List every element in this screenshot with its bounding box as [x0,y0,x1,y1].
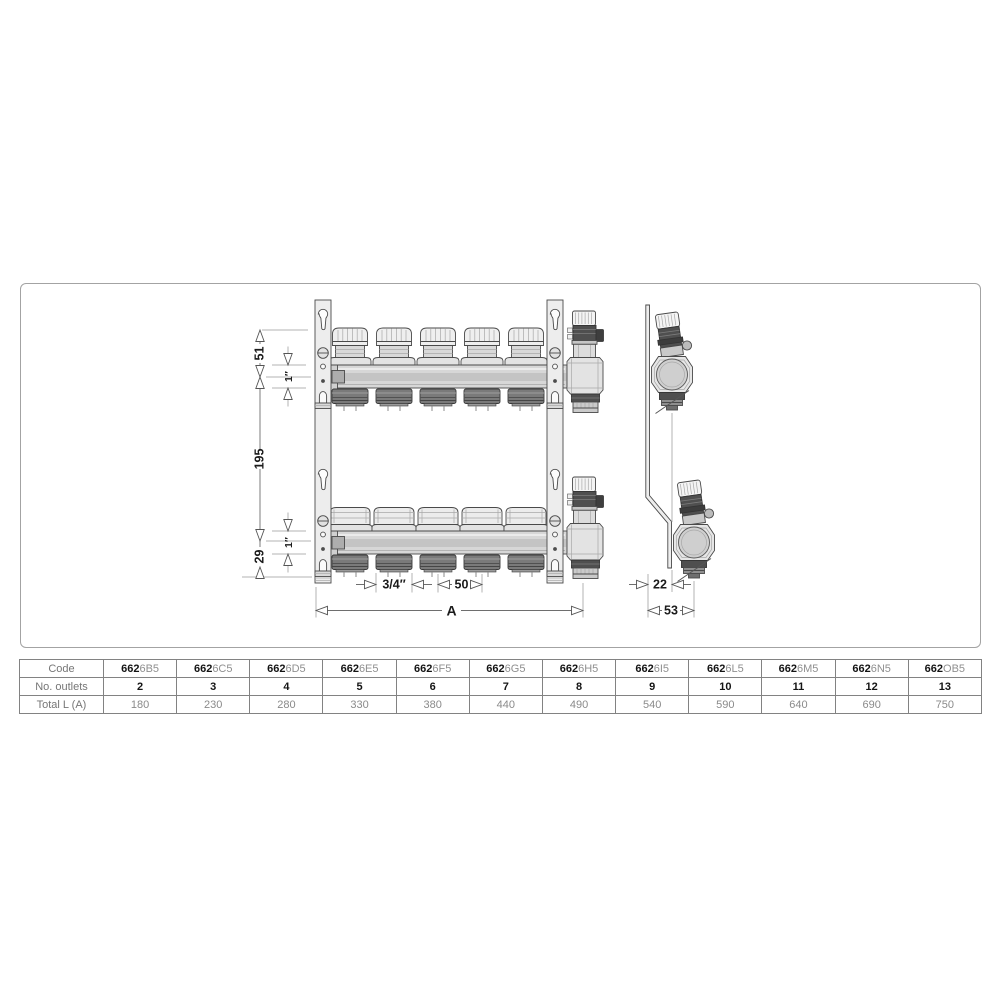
code-suffix: OB5 [943,663,965,675]
code-prefix: 662 [486,663,504,675]
outlets-cell: 2 [104,678,177,696]
spec-row-outlets: No. outlets 2 3 4 5 6 7 8 9 10 11 12 13 [20,678,982,696]
code-prefix: 662 [560,663,578,675]
code-suffix: 6F5 [432,663,451,675]
diagram-panel: 51 1″ 195 29 1″ 3/4″ 50 A 22 53 [20,283,981,648]
outlets-cell: 9 [616,678,689,696]
code-cell: 6626D5 [250,660,323,678]
dim-label-51: 51 [253,347,267,361]
total-length-cell: 180 [104,696,177,714]
code-cell: 6626E5 [323,660,396,678]
outlets-cell: 12 [835,678,908,696]
dim-label-total-length-A: A [446,603,456,619]
dim-label-outlet-size: 3/4″ [382,578,405,592]
outlets-cell: 13 [908,678,981,696]
dim-label-depth-offset: 22 [653,578,667,592]
outlets-cell: 4 [250,678,323,696]
code-prefix: 662 [707,663,725,675]
total-length-cell: 280 [250,696,323,714]
code-cell: 6626C5 [177,660,250,678]
dim-label-195: 195 [253,449,267,470]
outlets-cell: 11 [762,678,835,696]
total-length-cell: 230 [177,696,250,714]
total-length-cell: 590 [689,696,762,714]
manifold-technical-drawing: 51 1″ 195 29 1″ 3/4″ 50 A 22 53 [21,284,978,645]
code-suffix: 6D5 [285,663,305,675]
code-suffix: 6I5 [654,663,669,675]
outlets-cell: 3 [177,678,250,696]
code-prefix: 662 [341,663,359,675]
code-suffix: 6G5 [505,663,526,675]
code-suffix: 6C5 [212,663,232,675]
outlets-cell: 7 [469,678,542,696]
total-length-cell: 750 [908,696,981,714]
code-cell: 6626N5 [835,660,908,678]
row-label-outlets: No. outlets [20,678,104,696]
code-suffix: 6M5 [797,663,818,675]
code-suffix: 6L5 [725,663,743,675]
outlets-cell: 5 [323,678,396,696]
dim-label-depth-total: 53 [664,604,678,618]
dim-label-1in-top: 1″ [283,371,295,382]
side-view [646,305,715,582]
spec-row-total-length: Total L (A) 180 230 280 330 380 440 490 … [20,696,982,714]
total-length-cell: 690 [835,696,908,714]
total-length-cell: 640 [762,696,835,714]
dim-label-1in-bottom: 1″ [283,537,295,548]
code-cell: 6626M5 [762,660,835,678]
total-length-cell: 380 [396,696,469,714]
code-cell: 6626H5 [542,660,615,678]
code-prefix: 662 [194,663,212,675]
spec-table: Code 6626B5 6626C5 6626D5 6626E5 6626F5 … [19,659,982,714]
code-cell: 6626F5 [396,660,469,678]
code-suffix: 6E5 [359,663,379,675]
code-prefix: 662 [779,663,797,675]
code-cell: 6626B5 [104,660,177,678]
code-cell: 6626G5 [469,660,542,678]
outlets-cell: 8 [542,678,615,696]
outlets-cell: 6 [396,678,469,696]
code-suffix: 6N5 [871,663,891,675]
code-suffix: 6H5 [578,663,598,675]
spec-row-code: Code 6626B5 6626C5 6626D5 6626E5 6626F5 … [20,660,982,678]
outlets-cell: 10 [689,678,762,696]
dim-label-outlet-spacing: 50 [455,578,469,592]
code-cell: 662OB5 [908,660,981,678]
total-length-cell: 490 [542,696,615,714]
total-length-cell: 440 [469,696,542,714]
code-prefix: 662 [635,663,653,675]
front-view [315,300,604,583]
code-prefix: 662 [925,663,943,675]
code-prefix: 662 [414,663,432,675]
code-suffix: 6B5 [139,663,159,675]
total-length-cell: 540 [616,696,689,714]
code-prefix: 662 [121,663,139,675]
row-label-total-length: Total L (A) [20,696,104,714]
code-prefix: 662 [852,663,870,675]
code-cell: 6626L5 [689,660,762,678]
code-prefix: 662 [267,663,285,675]
total-length-cell: 330 [323,696,396,714]
dim-label-29: 29 [253,550,267,564]
row-label-code: Code [20,660,104,678]
code-cell: 6626I5 [616,660,689,678]
